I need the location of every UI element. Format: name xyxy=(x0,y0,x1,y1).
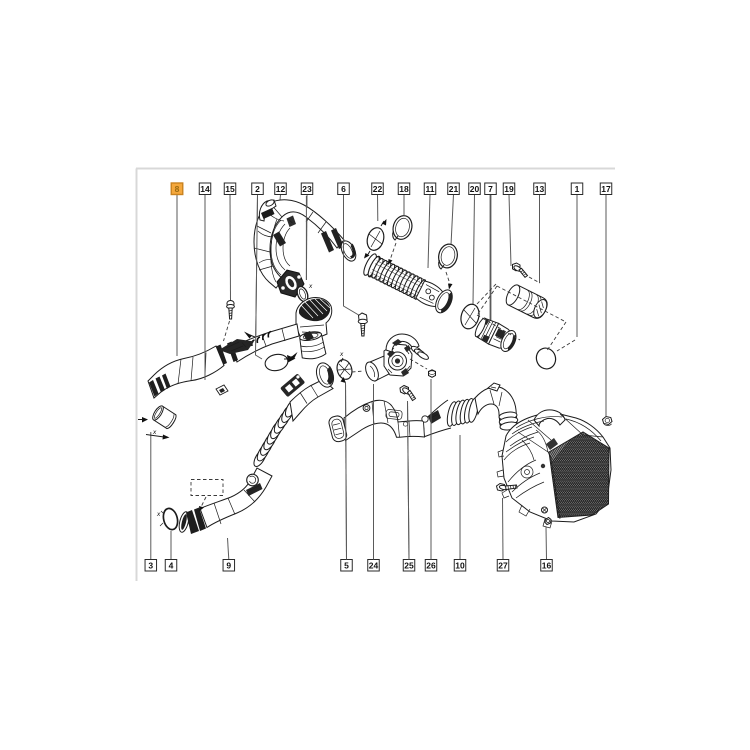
svg-text:16: 16 xyxy=(542,561,552,571)
svg-text:x: x xyxy=(156,511,161,518)
svg-text:21: 21 xyxy=(449,184,459,194)
svg-text:27: 27 xyxy=(498,561,508,571)
svg-text:17: 17 xyxy=(601,184,611,194)
svg-text:1: 1 xyxy=(575,184,580,194)
svg-text:22: 22 xyxy=(373,184,383,194)
svg-text:18: 18 xyxy=(399,184,409,194)
svg-text:20: 20 xyxy=(470,184,480,194)
svg-text:5: 5 xyxy=(344,561,349,571)
svg-text:14: 14 xyxy=(200,184,210,194)
svg-text:11: 11 xyxy=(426,184,435,194)
svg-text:12: 12 xyxy=(276,184,286,194)
svg-text:7: 7 xyxy=(488,184,493,194)
svg-text:9: 9 xyxy=(226,561,231,571)
svg-text:6: 6 xyxy=(341,184,346,194)
svg-text:8: 8 xyxy=(175,184,180,194)
svg-text:19: 19 xyxy=(504,184,514,194)
svg-text:23: 23 xyxy=(302,184,312,194)
svg-text:2: 2 xyxy=(255,184,260,194)
svg-text:10: 10 xyxy=(455,561,465,571)
svg-text:26: 26 xyxy=(426,561,436,571)
svg-text:25: 25 xyxy=(404,561,414,571)
svg-text:4: 4 xyxy=(169,561,174,571)
svg-text:3: 3 xyxy=(148,561,153,571)
svg-text:x: x xyxy=(339,351,344,358)
svg-text:13: 13 xyxy=(535,184,545,194)
svg-text:15: 15 xyxy=(225,184,235,194)
svg-text:x: x xyxy=(308,283,313,290)
svg-text:24: 24 xyxy=(369,561,379,571)
